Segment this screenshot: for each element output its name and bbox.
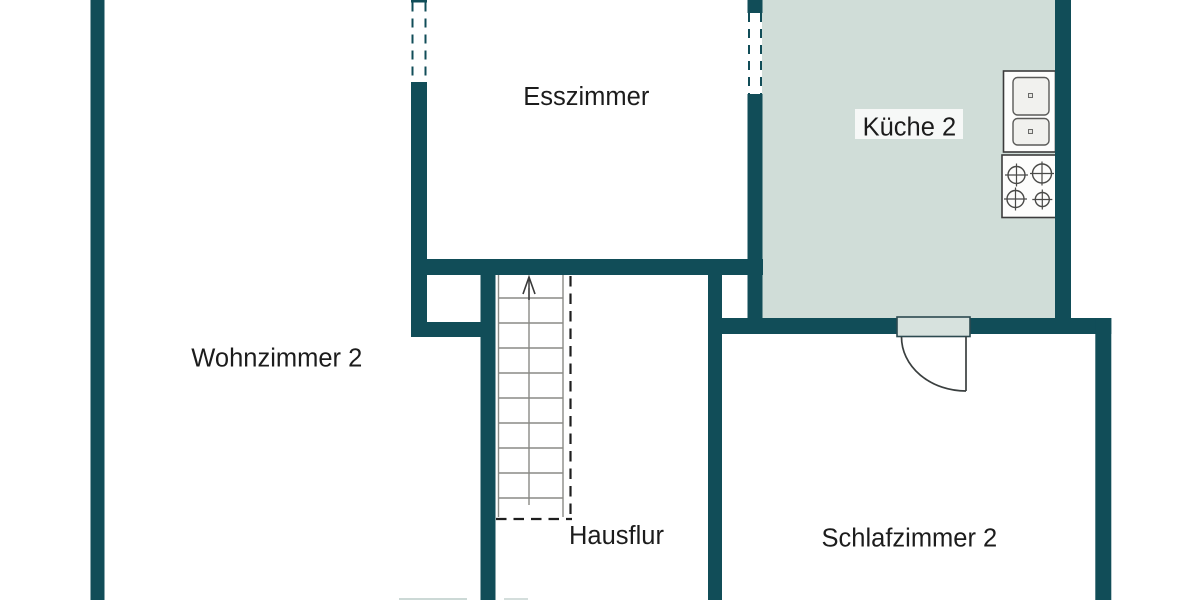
svg-text:Wohnzimmer 2: Wohnzimmer 2 [191, 345, 362, 373]
svg-text:Küche 2: Küche 2 [863, 113, 957, 141]
svg-text:Schlafzimmer 2: Schlafzimmer 2 [822, 525, 998, 553]
svg-text:Esszimmer: Esszimmer [523, 83, 650, 111]
svg-text:Hausflur: Hausflur [569, 522, 664, 550]
